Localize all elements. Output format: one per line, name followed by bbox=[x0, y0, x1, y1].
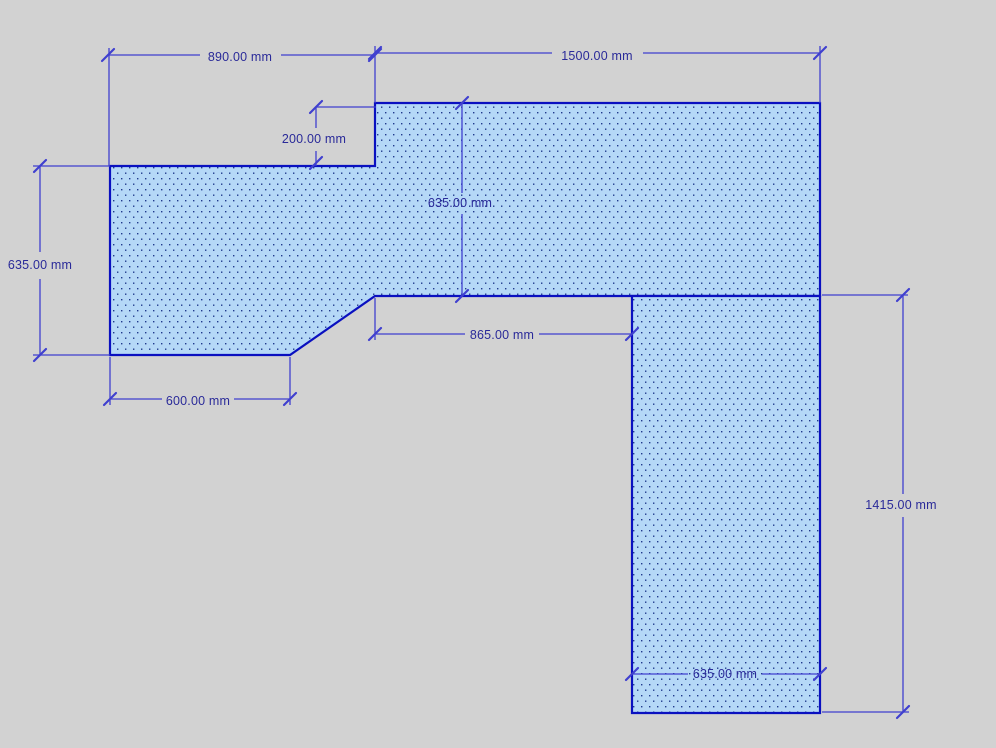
dimension-top-left-width[interactable] bbox=[102, 46, 381, 166]
dimension-label-top-left-width[interactable]: 890.00 mm bbox=[208, 51, 272, 64]
dimension-label-top-section-depth[interactable]: 635.00 mm bbox=[428, 197, 492, 210]
dimension-label-inner-edge-width[interactable]: 865.00 mm bbox=[470, 329, 534, 342]
dimension-label-top-right-width[interactable]: 1500.00 mm bbox=[561, 50, 632, 63]
drawing-viewport[interactable]: 890.00 mm 1500.00 mm 200.00 mm 635.00 mm… bbox=[0, 0, 996, 748]
countertop-piece-right[interactable] bbox=[632, 296, 820, 713]
dimension-label-bottom-left-width[interactable]: 600.00 mm bbox=[166, 395, 230, 408]
drawing-canvas[interactable] bbox=[0, 0, 996, 748]
dimension-label-notch-depth[interactable]: 200.00 mm bbox=[282, 133, 346, 146]
dimension-label-left-section-depth[interactable]: 635.00 mm bbox=[8, 259, 72, 272]
dimension-label-right-section-height[interactable]: 1415.00 mm bbox=[865, 499, 936, 512]
dimension-label-right-section-width[interactable]: 635.00 mm bbox=[693, 668, 757, 681]
